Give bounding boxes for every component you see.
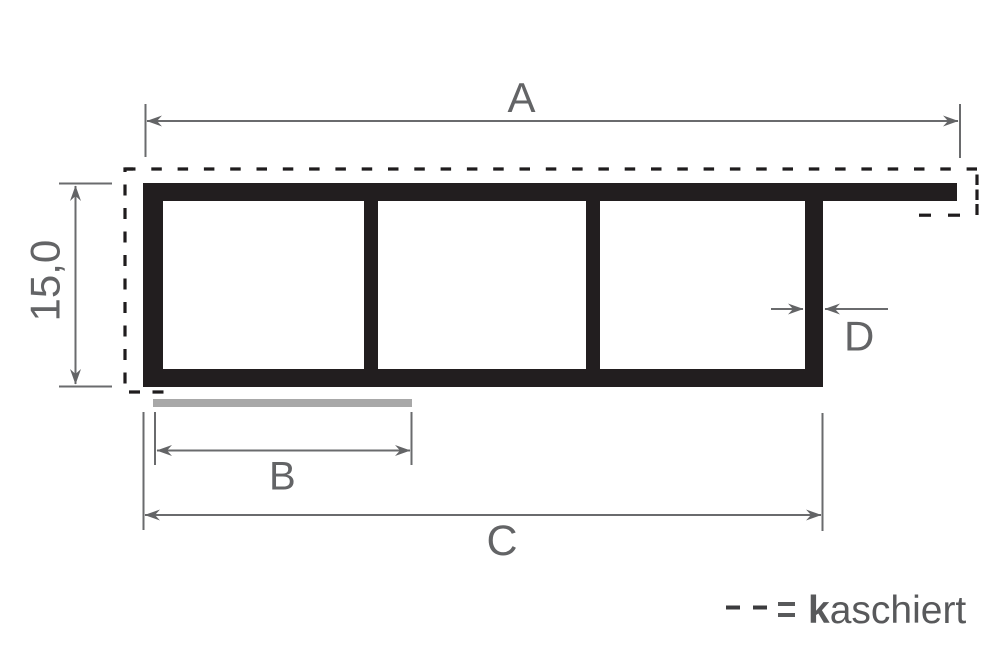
svg-text:15,0: 15,0 — [22, 240, 69, 322]
svg-text:B: B — [269, 455, 296, 499]
svg-text:D: D — [844, 313, 874, 360]
svg-text:kaschiert: kaschiert — [808, 589, 966, 632]
svg-text:A: A — [508, 74, 536, 121]
svg-text:C: C — [487, 517, 518, 565]
